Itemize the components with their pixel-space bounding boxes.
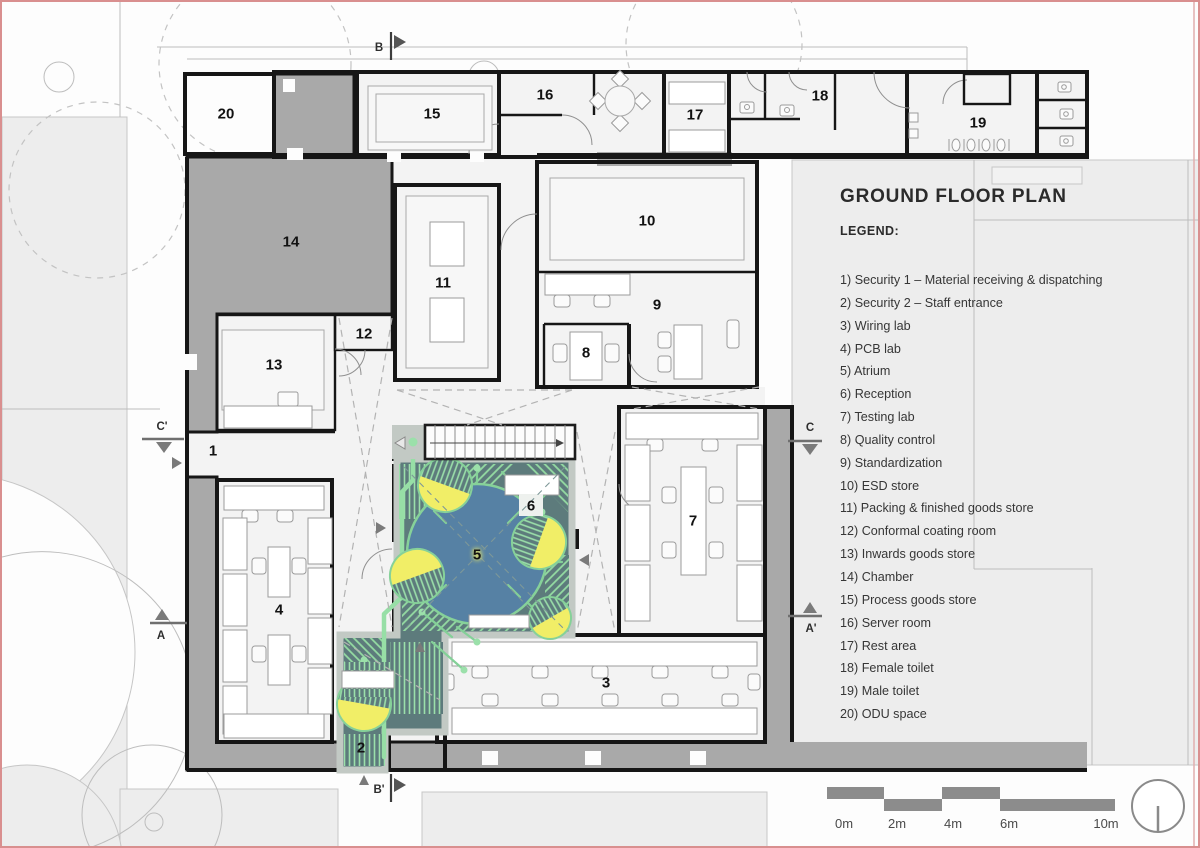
room-label-1: 1 [209, 443, 217, 460]
room-label-10: 10 [639, 213, 656, 230]
section-marker-B: B [375, 42, 383, 54]
legend-item-19: 19) Male toilet [840, 680, 1185, 703]
legend-list: 1) Security 1 – Material receiving & dis… [840, 269, 1185, 726]
north-indicator [1132, 780, 1184, 832]
section-marker-B-prime: B' [373, 784, 384, 796]
legend-item-7: 7) Testing lab [840, 406, 1185, 429]
legend-item-15: 15) Process goods store [840, 589, 1185, 612]
legend-item-2: 2) Security 2 – Staff entrance [840, 292, 1185, 315]
legend-item-12: 12) Conformal coating room [840, 520, 1185, 543]
room-label-18: 18 [812, 88, 829, 105]
room-label-3: 3 [602, 675, 610, 692]
room-label-20: 20 [218, 106, 235, 123]
legend-item-20: 20) ODU space [840, 703, 1185, 726]
urinals [949, 139, 1009, 151]
room-label-19: 19 [970, 115, 987, 132]
legend-item-16: 16) Server room [840, 612, 1185, 635]
scale-label-6m: 6m [1000, 816, 1018, 831]
section-marker-C: C [806, 422, 814, 434]
legend-item-14: 14) Chamber [840, 566, 1185, 589]
staircase [392, 425, 575, 459]
legend-item-3: 3) Wiring lab [840, 315, 1185, 338]
page-title: GROUND FLOOR PLAN [840, 186, 1185, 208]
section-marker-C-prime: C' [156, 421, 167, 433]
room-label-13: 13 [266, 357, 283, 374]
floor-plan-sheet: 1234567891011121314151617181920 BB'C'CAA… [0, 0, 1200, 848]
room-label-14: 14 [283, 234, 300, 251]
room-label-17: 17 [687, 107, 704, 124]
legend-heading: LEGEND: [840, 224, 1185, 238]
room-label-15: 15 [424, 106, 441, 123]
legend-item-9: 9) Standardization [840, 452, 1185, 475]
room-label-12: 12 [356, 326, 373, 343]
legend-item-11: 11) Packing & finished goods store [840, 497, 1185, 520]
room-label-5: 5 [473, 547, 481, 564]
room-label-7: 7 [689, 513, 697, 530]
legend-item-18: 18) Female toilet [840, 657, 1185, 680]
scale-label-2m: 2m [888, 816, 906, 831]
legend-item-17: 17) Rest area [840, 635, 1185, 658]
legend-panel: GROUND FLOOR PLAN LEGEND: 1) Security 1 … [840, 186, 1185, 726]
scale-label-0m: 0m [835, 816, 853, 831]
room-label-4: 4 [275, 602, 283, 619]
legend-item-4: 4) PCB lab [840, 338, 1185, 361]
room-label-2: 2 [357, 740, 365, 757]
scale-label-10m: 10m [1093, 816, 1118, 831]
legend-item-1: 1) Security 1 – Material receiving & dis… [840, 269, 1185, 292]
room-label-9: 9 [653, 297, 661, 314]
legend-item-5: 5) Atrium [840, 360, 1185, 383]
legend-item-6: 6) Reception [840, 383, 1185, 406]
legend-item-13: 13) Inwards goods store [840, 543, 1185, 566]
scale-label-4m: 4m [944, 816, 962, 831]
section-marker-A-prime: A' [805, 623, 816, 635]
room-label-16: 16 [537, 87, 554, 104]
legend-item-10: 10) ESD store [840, 475, 1185, 498]
room-label-8: 8 [582, 345, 590, 362]
room-label-11: 11 [435, 275, 451, 292]
scale-bar [827, 787, 1115, 811]
legend-item-8: 8) Quality control [840, 429, 1185, 452]
section-marker-A: A [157, 630, 165, 642]
room-label-6: 6 [527, 498, 535, 515]
